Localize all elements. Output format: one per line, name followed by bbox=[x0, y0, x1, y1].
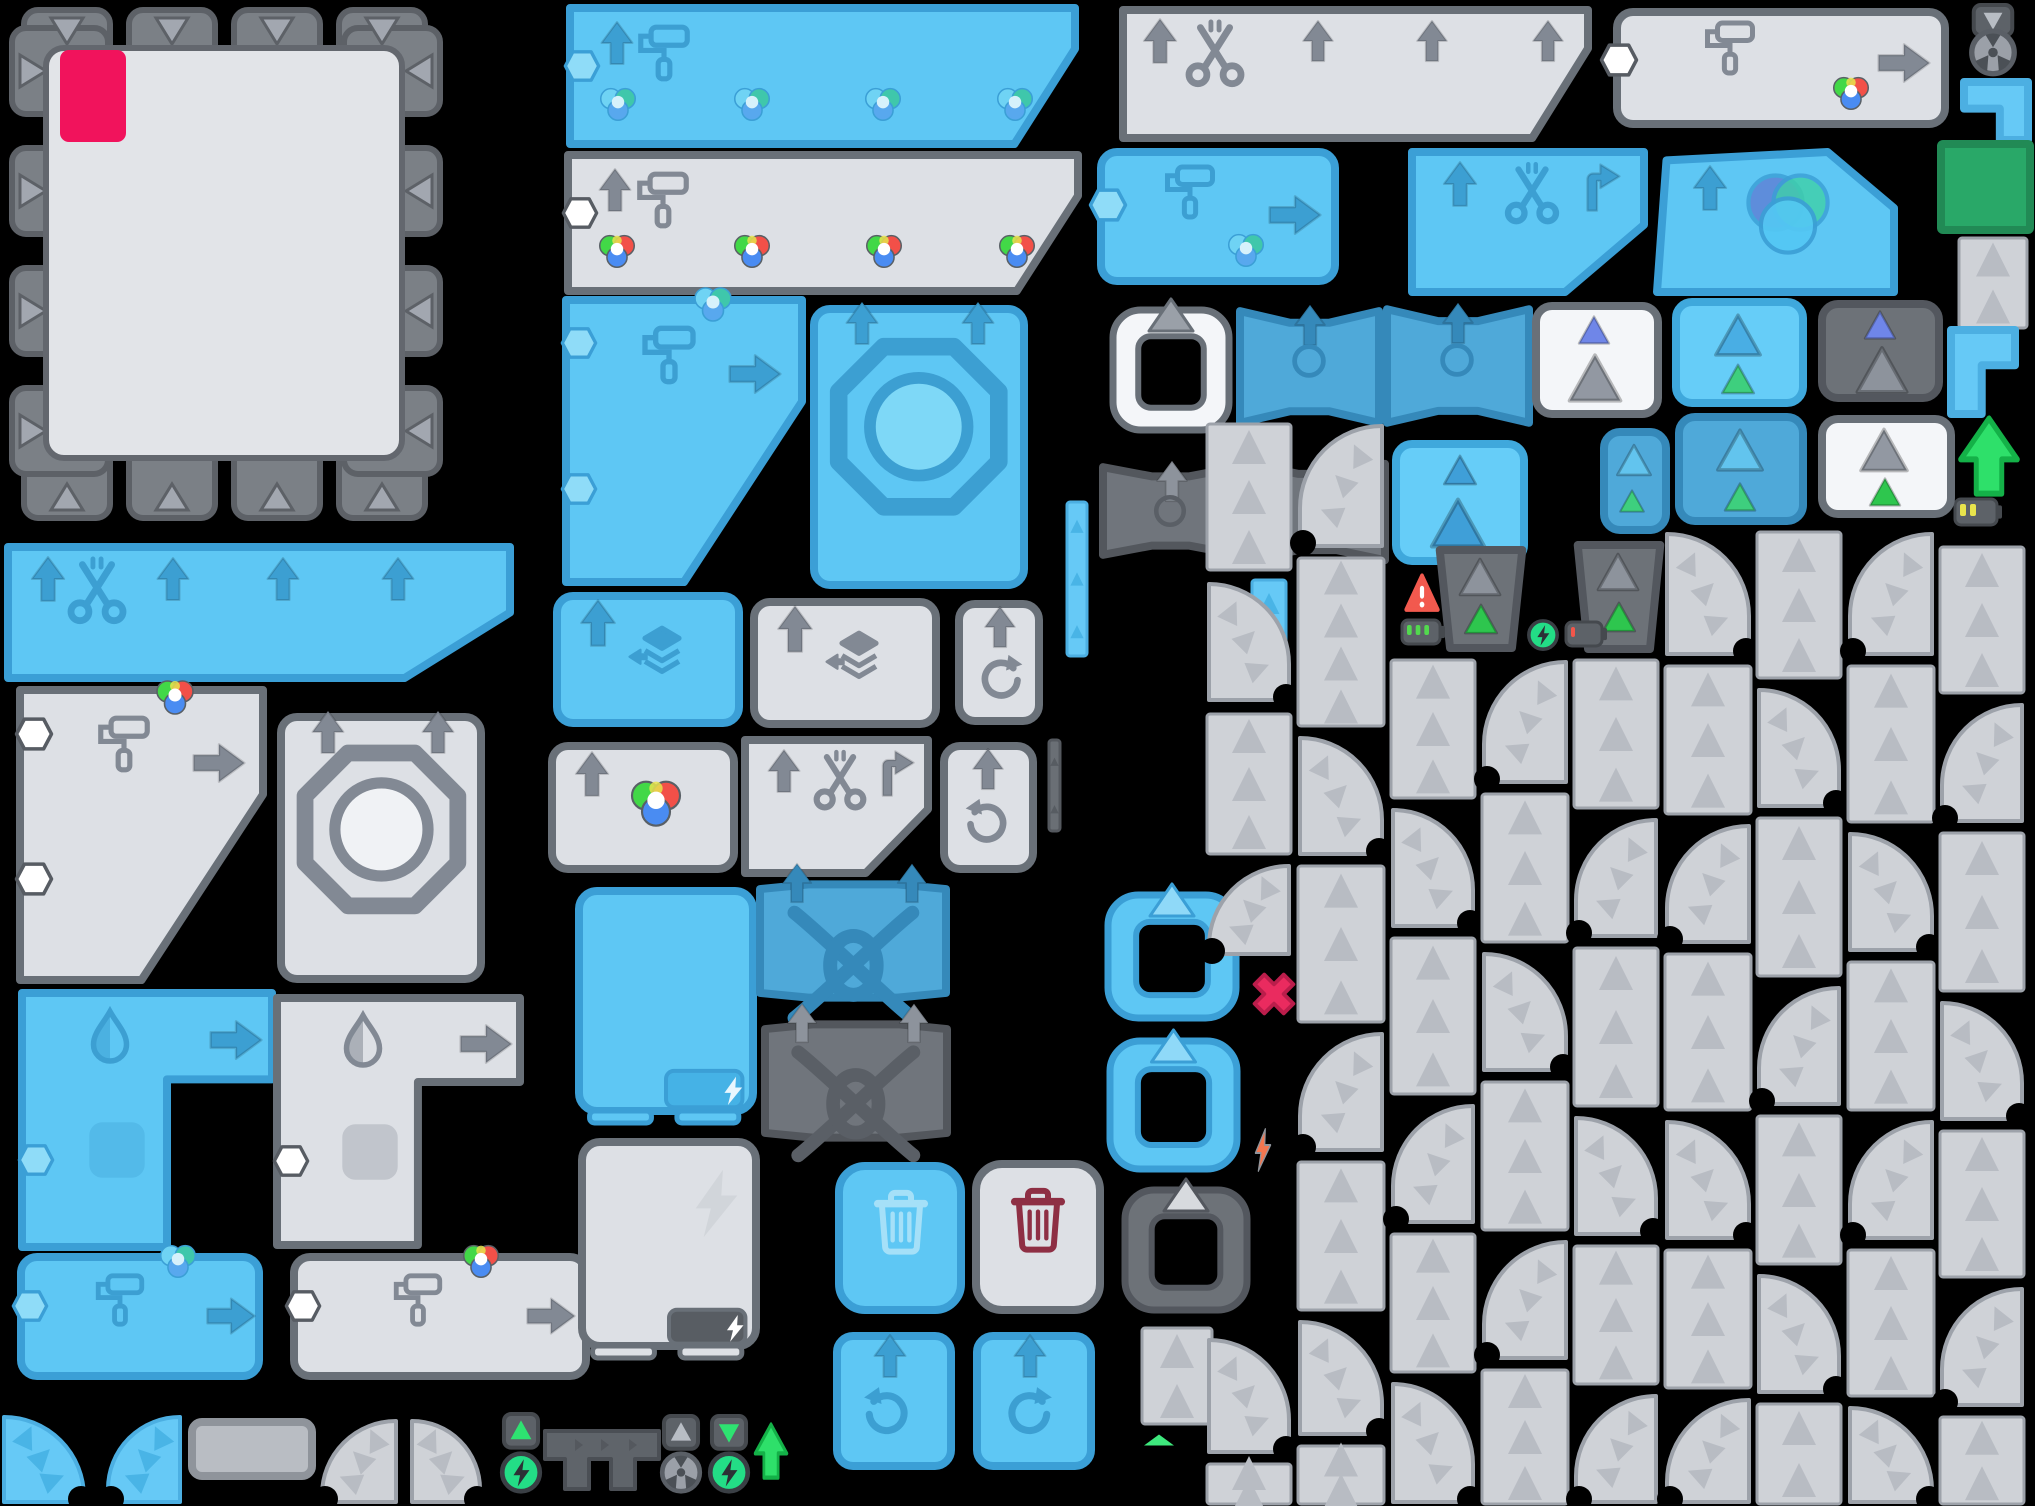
belt-curve bbox=[1296, 734, 1386, 858]
tile-white-triangles bbox=[1532, 302, 1662, 418]
crosser-dark bbox=[765, 1022, 947, 1140]
belt-straight bbox=[1296, 556, 1386, 728]
arrow-up-icon bbox=[977, 604, 1023, 650]
rotate-cw-icon bbox=[971, 650, 1029, 708]
ring-icon bbox=[1286, 338, 1332, 384]
hexagon-icon bbox=[559, 469, 599, 509]
pin-pusher-gray bbox=[277, 998, 520, 1245]
belt-straight bbox=[1755, 1114, 1843, 1266]
hexagon-icon bbox=[16, 1140, 56, 1180]
rgb-mono-icon bbox=[1223, 227, 1269, 273]
belt-straight bbox=[1663, 952, 1753, 1112]
warning-sign bbox=[1404, 572, 1440, 616]
rgb-full-icon bbox=[594, 228, 640, 274]
stack-icon bbox=[822, 624, 896, 698]
mixer-octagon-gray bbox=[277, 713, 485, 983]
hexagon-white-icon bbox=[13, 858, 55, 900]
bracket-dark bbox=[1120, 1185, 1252, 1315]
triangle-icon bbox=[1721, 478, 1759, 516]
paint-roller-icon bbox=[1700, 18, 1760, 78]
belt-straight bbox=[1938, 545, 2026, 695]
water-drop-icon bbox=[330, 1010, 396, 1076]
battery-green bbox=[1400, 618, 1448, 646]
belt-curve bbox=[1846, 530, 1936, 658]
square-slot-icon bbox=[82, 1115, 152, 1185]
painter-gray-small bbox=[1613, 8, 1949, 128]
pipe-elbow-blue bbox=[1951, 330, 2015, 414]
belt-curve bbox=[1663, 1118, 1753, 1242]
painter-quad-blue bbox=[570, 8, 1075, 144]
belt-curve bbox=[1296, 422, 1386, 550]
pusher-blue bbox=[1387, 300, 1529, 432]
arrow-up-icon bbox=[769, 603, 821, 655]
arrow-bend-icon bbox=[1570, 160, 1624, 214]
bracket-white bbox=[1108, 305, 1234, 435]
belt-curve bbox=[1205, 1336, 1293, 1456]
belt-curve bbox=[1846, 1118, 1936, 1242]
triangle-icon bbox=[1712, 422, 1768, 478]
trash-gray bbox=[972, 1160, 1104, 1314]
belt-curve bbox=[1846, 1404, 1936, 1506]
green-arrow bbox=[752, 1422, 790, 1480]
arrow-up-icon bbox=[1006, 1332, 1054, 1380]
arrow-up-icon bbox=[259, 555, 307, 603]
triangle-icon bbox=[1575, 311, 1613, 349]
pipe-junction-dark bbox=[545, 1427, 660, 1490]
belt-curve bbox=[318, 1417, 400, 1506]
arrow-up-icon bbox=[149, 555, 197, 603]
belt-straight bbox=[1957, 236, 2029, 330]
belt-straight bbox=[1846, 1248, 1936, 1398]
arrow-up-icon bbox=[760, 747, 808, 795]
tri-green bbox=[1139, 1429, 1179, 1451]
hexagon-icon bbox=[10, 1286, 50, 1326]
rotator-ccw-blue bbox=[833, 1332, 955, 1470]
belt-curve bbox=[1205, 862, 1293, 958]
belt-curve bbox=[1938, 701, 2026, 825]
rgb-full-icon bbox=[624, 771, 688, 835]
arrow-right-icon bbox=[726, 345, 784, 403]
belt-straight bbox=[1663, 664, 1753, 816]
rgb-full-icon bbox=[1828, 70, 1874, 116]
arrow-up-icon bbox=[1295, 18, 1341, 64]
arrow-up-icon bbox=[374, 555, 422, 603]
octagon-icon bbox=[825, 333, 1012, 520]
belt-straight bbox=[1572, 946, 1660, 1108]
rgb-mono-icon bbox=[595, 81, 641, 127]
triangle-icon bbox=[1563, 346, 1627, 410]
belt-straight bbox=[1572, 658, 1660, 810]
pusher-blue bbox=[1240, 302, 1379, 432]
arrow-up-icon bbox=[1409, 18, 1455, 64]
belt-straight bbox=[1755, 816, 1843, 978]
belt-straight bbox=[1296, 1444, 1386, 1506]
belt-straight bbox=[1296, 1160, 1386, 1312]
rgb-mono-icon bbox=[155, 1238, 201, 1284]
belt-straight-dark bbox=[1047, 738, 1062, 833]
radiation-conduit-badge bbox=[1967, 3, 2019, 79]
belt-straight bbox=[1846, 960, 1936, 1112]
painter-full-blue bbox=[566, 300, 802, 582]
power-bolt bbox=[1249, 1126, 1277, 1174]
triangle-icon bbox=[1710, 307, 1766, 363]
arrow-right-icon bbox=[1266, 186, 1324, 244]
arrow-up-icon bbox=[1685, 163, 1735, 213]
green-arrow bbox=[1955, 415, 2023, 497]
square-slot-icon bbox=[335, 1117, 405, 1187]
belt-curve bbox=[1480, 950, 1570, 1074]
rotator-cw-blue bbox=[973, 1332, 1095, 1470]
hexagon-white-icon bbox=[271, 1141, 311, 1181]
energy-out-badge bbox=[498, 1412, 544, 1496]
mixer-octagon-blue bbox=[810, 305, 1028, 589]
belt-curve bbox=[1938, 1285, 2026, 1409]
belt-curve bbox=[1663, 822, 1753, 946]
belt-straight-sky bbox=[1065, 500, 1089, 658]
triangle-icon bbox=[1593, 547, 1643, 597]
painter-quad-gray bbox=[568, 155, 1078, 291]
belt-straight bbox=[1846, 664, 1936, 824]
belt-curve bbox=[1938, 999, 2026, 1123]
rotate-ccw-icon bbox=[857, 1382, 919, 1444]
triangle-icon bbox=[1440, 450, 1480, 490]
rgb-mono-icon bbox=[689, 280, 737, 328]
platform bbox=[10, 8, 442, 520]
ring-icon bbox=[1148, 489, 1192, 533]
pipe-elbow-blue bbox=[1964, 82, 2028, 140]
cutter-quad-gray bbox=[1123, 10, 1588, 138]
hexagon-white-icon bbox=[13, 713, 55, 755]
tile-steel-triangles bbox=[1675, 413, 1807, 525]
paint-roller-icon bbox=[91, 1271, 149, 1329]
belt-straight bbox=[1480, 792, 1570, 944]
radiation-in-badge bbox=[658, 1414, 704, 1496]
ring-icon bbox=[1434, 337, 1480, 383]
bar-gray bbox=[188, 1418, 316, 1480]
belt-straight bbox=[1205, 712, 1293, 856]
rgb-full-icon bbox=[151, 673, 199, 721]
paint-roller-icon bbox=[633, 22, 695, 84]
rgb-full-icon bbox=[994, 228, 1040, 274]
tile-cyan-triangles bbox=[1672, 298, 1807, 407]
paint-roller-icon bbox=[1160, 162, 1220, 222]
paint-roller-icon bbox=[637, 323, 701, 387]
rotator-cw-gray bbox=[955, 600, 1043, 725]
rgb-full-icon bbox=[729, 228, 775, 274]
paint-roller-icon bbox=[389, 1271, 447, 1329]
belt-straight bbox=[1572, 1244, 1660, 1386]
tile-white-triangles bbox=[1818, 415, 1955, 518]
triangle-icon bbox=[1851, 339, 1913, 401]
trash-can-icon bbox=[998, 1180, 1078, 1260]
belt-straight bbox=[1389, 1232, 1477, 1374]
belt-curve bbox=[1480, 658, 1570, 786]
belt-straight bbox=[1755, 1402, 1843, 1506]
trash-can-icon bbox=[861, 1182, 941, 1262]
belt-straight bbox=[1296, 864, 1386, 1024]
belt-curve bbox=[1755, 984, 1843, 1108]
belt-curve bbox=[408, 1417, 484, 1506]
triangle-icon bbox=[1855, 421, 1913, 479]
belt-curve bbox=[1389, 1380, 1477, 1506]
belt-curve-blue bbox=[104, 1413, 184, 1506]
belt-curve bbox=[1755, 686, 1843, 810]
triangle-icon bbox=[1718, 359, 1758, 399]
hexagon-white-icon bbox=[283, 1286, 323, 1326]
rgb-mono-icon bbox=[992, 81, 1038, 127]
painter-hex-gray bbox=[20, 690, 263, 980]
arrow-up-icon bbox=[1525, 18, 1571, 64]
belt-straight bbox=[1480, 1368, 1570, 1506]
trash-blue bbox=[835, 1162, 965, 1314]
belt-curve bbox=[1389, 1102, 1477, 1226]
belt-curve bbox=[1572, 1392, 1660, 1506]
triangle-icon bbox=[1455, 552, 1505, 602]
belt-straight bbox=[1663, 1248, 1753, 1390]
energy-in-badge bbox=[706, 1414, 752, 1496]
belt-straight bbox=[1205, 1462, 1293, 1506]
rgb-mono-icon bbox=[860, 81, 906, 127]
rotate-ccw-icon bbox=[959, 794, 1017, 852]
cutter-quad-blue bbox=[8, 547, 510, 678]
cutter-half-gray bbox=[745, 740, 928, 873]
rgb-full-icon bbox=[458, 1238, 504, 1284]
battery-store-blue bbox=[575, 887, 757, 1129]
paint-roller-icon bbox=[93, 713, 155, 775]
stacker-blue bbox=[553, 592, 743, 727]
belt-straight bbox=[1140, 1326, 1214, 1426]
belt-curve bbox=[1296, 1030, 1386, 1154]
painter-blue bbox=[17, 1253, 263, 1380]
sprite-atlas bbox=[0, 0, 2035, 1506]
belt-straight bbox=[1938, 831, 2026, 993]
water-drop-icon bbox=[77, 1006, 143, 1072]
arrow-right-icon bbox=[457, 1015, 515, 1073]
tile-dark-triangles bbox=[1818, 300, 1943, 402]
rgb-mono-icon bbox=[729, 81, 775, 127]
belt-curve bbox=[1755, 1272, 1843, 1396]
arrow-up-icon bbox=[1435, 159, 1485, 209]
scissors-icon bbox=[1496, 156, 1568, 228]
arrow-up-icon bbox=[965, 746, 1011, 792]
arrow-right-icon bbox=[1875, 34, 1933, 92]
painter-gray-2 bbox=[290, 1253, 590, 1380]
arrow-right-icon bbox=[204, 1289, 258, 1343]
hexagon-icon bbox=[559, 323, 599, 363]
scissors-icon bbox=[1176, 13, 1254, 91]
triangle-icon bbox=[1461, 599, 1501, 639]
arrow-up-icon bbox=[866, 1332, 914, 1380]
battery-store-gray bbox=[578, 1138, 760, 1364]
arrow-right-icon bbox=[207, 1011, 265, 1069]
belt-curve bbox=[1663, 530, 1753, 658]
belt-straight bbox=[1389, 658, 1477, 800]
stack-icon bbox=[625, 619, 699, 693]
rgb-full-icon bbox=[861, 228, 907, 274]
arrow-right-icon bbox=[524, 1289, 578, 1343]
energy-orb bbox=[1526, 618, 1560, 652]
arrow-bend-icon bbox=[866, 747, 918, 799]
arrow-right-icon bbox=[190, 734, 248, 792]
paint-roller-icon bbox=[632, 169, 694, 231]
belt-curve bbox=[1480, 1238, 1570, 1362]
crosser-blue bbox=[760, 882, 946, 1000]
belt-straight bbox=[1480, 1080, 1570, 1232]
belt-curve bbox=[1389, 806, 1477, 930]
cross-icon bbox=[783, 1031, 929, 1177]
painter-gray bbox=[548, 742, 738, 873]
scissors-icon bbox=[58, 550, 136, 628]
hexagon-white-icon bbox=[1598, 39, 1640, 81]
octagon-icon bbox=[292, 740, 471, 919]
belt-curve bbox=[1205, 580, 1293, 704]
belt-straight bbox=[1205, 422, 1293, 572]
belt-straight bbox=[1938, 1129, 2026, 1279]
belt-straight bbox=[1755, 530, 1843, 680]
tile-steel-small bbox=[1600, 428, 1670, 534]
belt-curve bbox=[1663, 1396, 1753, 1506]
battery-yellow bbox=[1953, 497, 2005, 527]
belt-curve-blue bbox=[0, 1413, 88, 1506]
belt-curve bbox=[1572, 1114, 1660, 1238]
bin-dark bbox=[1438, 550, 1524, 648]
venn-blue-icon bbox=[1738, 163, 1838, 263]
stacker-gray bbox=[750, 598, 940, 728]
arrow-up-icon bbox=[572, 597, 624, 649]
triangle-icon bbox=[1866, 473, 1904, 511]
triangle-icon bbox=[1613, 439, 1655, 481]
green-square bbox=[1937, 140, 2034, 234]
cutter-half-blue bbox=[1412, 152, 1644, 292]
bracket-blue bbox=[1105, 1036, 1242, 1174]
battery-low bbox=[1564, 620, 1610, 648]
belt-curve bbox=[1296, 1318, 1386, 1438]
rotate-cw-icon bbox=[997, 1382, 1059, 1444]
pin-pusher-blue bbox=[22, 993, 272, 1247]
belt-curve bbox=[1572, 816, 1660, 940]
hexagon-icon bbox=[1087, 184, 1129, 226]
belt-straight bbox=[1389, 936, 1477, 1096]
belt-straight bbox=[1938, 1415, 2026, 1506]
belt-curve bbox=[1846, 830, 1936, 954]
rotator-ccw-gray bbox=[940, 742, 1037, 873]
triangle-icon bbox=[1617, 486, 1647, 516]
arrow-up-icon bbox=[567, 749, 617, 799]
mixer-blue-small bbox=[1657, 152, 1894, 292]
painter-blue-small bbox=[1097, 148, 1339, 285]
